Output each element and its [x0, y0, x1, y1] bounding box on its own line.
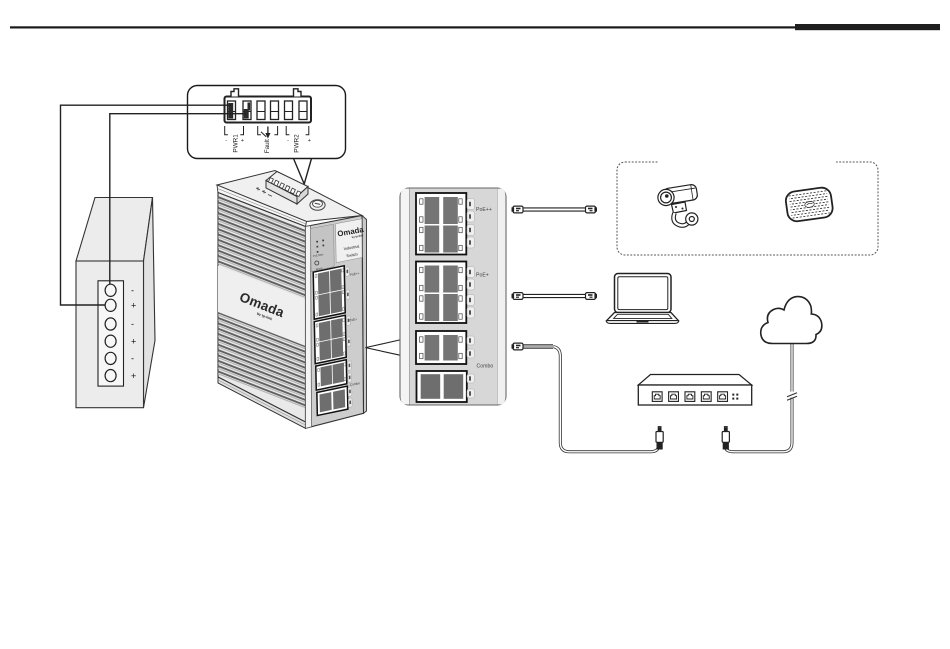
svg-text:PWR2: PWR2 — [294, 134, 301, 153]
svg-text:+: + — [131, 371, 136, 381]
svg-text:+: + — [131, 301, 136, 311]
svg-text:+: + — [241, 138, 244, 144]
svg-text:+: + — [308, 138, 311, 144]
svg-text:+: + — [131, 336, 136, 346]
svg-text:-: - — [131, 354, 134, 364]
svg-text:-: - — [225, 138, 227, 144]
svg-text:-: - — [131, 319, 134, 329]
svg-text:-: - — [131, 286, 134, 296]
svg-text:PoE++: PoE++ — [476, 207, 492, 213]
svg-text:Combo: Combo — [477, 364, 494, 370]
svg-text:PWR1: PWR1 — [233, 134, 240, 153]
svg-text:PoE+: PoE+ — [476, 273, 489, 279]
svg-text:Fault: Fault — [264, 139, 271, 153]
svg-text:-: - — [287, 138, 289, 144]
